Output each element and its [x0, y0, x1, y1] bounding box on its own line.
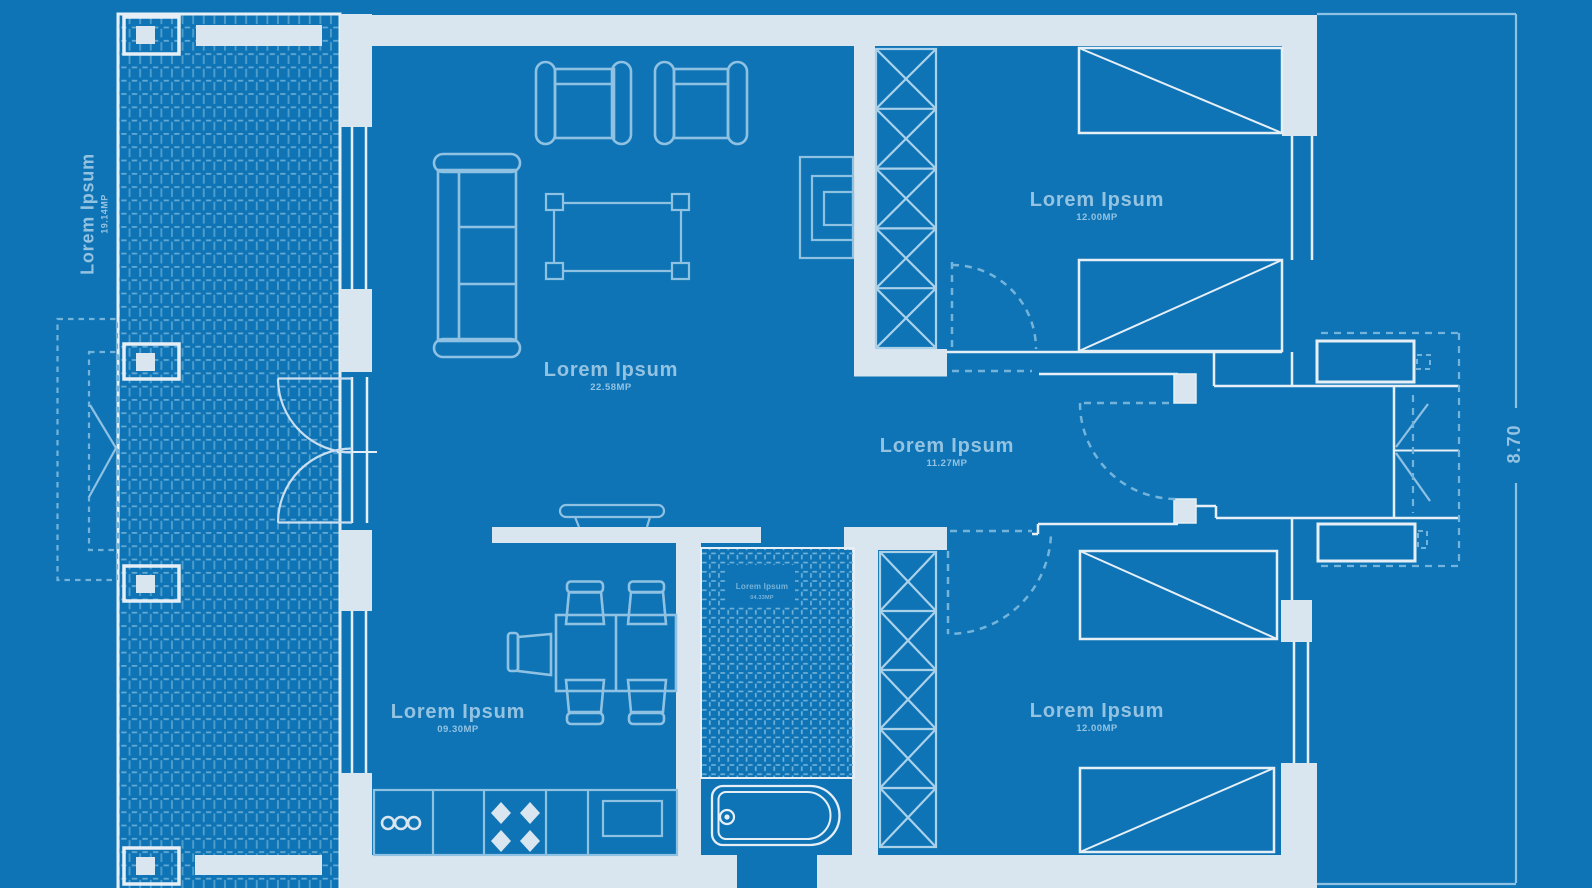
svg-text:09.30MP: 09.30MP: [437, 724, 479, 735]
svg-text:12.00MP: 12.00MP: [1076, 212, 1118, 223]
svg-text:Lorem Ipsum: Lorem Ipsum: [78, 153, 98, 275]
svg-text:8.70: 8.70: [1504, 424, 1524, 463]
svg-text:Lorem Ipsum: Lorem Ipsum: [544, 359, 678, 381]
svg-text:22.58MP: 22.58MP: [590, 382, 632, 393]
svg-text:Lorem Ipsum: Lorem Ipsum: [1030, 700, 1164, 722]
svg-text:Lorem Ipsum: Lorem Ipsum: [391, 701, 525, 723]
svg-text:Lorem Ipsum: Lorem Ipsum: [736, 582, 788, 591]
svg-text:Lorem Ipsum: Lorem Ipsum: [1030, 189, 1164, 211]
svg-text:12.00MP: 12.00MP: [1076, 723, 1118, 734]
svg-text:Lorem Ipsum: Lorem Ipsum: [880, 435, 1014, 457]
svg-text:04.33MP: 04.33MP: [750, 595, 774, 601]
svg-text:11.27MP: 11.27MP: [927, 458, 968, 469]
svg-text:19.14MP: 19.14MP: [100, 194, 110, 234]
